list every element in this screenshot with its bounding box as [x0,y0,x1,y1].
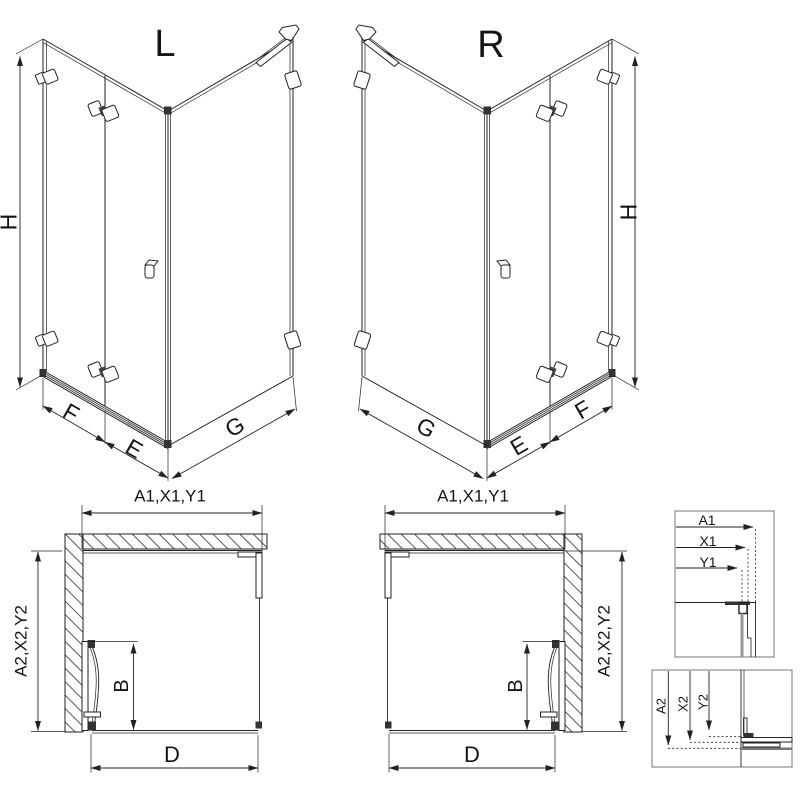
plan-right-depth-label: A2,X2,Y2 [596,605,613,677]
detail-top-row-a1: A1 [698,513,715,527]
detail-bottom-row-a2: A2 [655,698,668,714]
iso-left-title: L [154,25,175,63]
detail-bottom-drawing [652,670,792,767]
plan-left-opening-label: D [164,744,180,766]
plan-right-opening-label: D [464,744,480,766]
plan-left-door-label: B [112,679,132,692]
iso-right-height-label: H [618,204,641,221]
detail-top-row-y1: Y1 [699,555,716,569]
detail-top-row-x1: X1 [699,534,716,548]
plan-left-drawing [31,505,267,773]
detail-bottom-row-x2: X2 [677,696,690,712]
technical-drawing-page: L H F E G R H G E F A1,X1,Y1 A2,X2,Y2 B … [0,0,800,800]
plan-left-width-label: A1,X1,Y1 [134,488,206,505]
iso-left-height-label: H [0,214,21,231]
plan-left-depth-label: A2,X2,Y2 [13,605,30,677]
iso-right-drawing [353,25,639,481]
iso-left-drawing [16,25,302,481]
iso-right-title: R [477,26,504,64]
plan-right-width-label: A1,X1,Y1 [437,488,509,505]
plan-right-door-label: B [506,679,526,692]
detail-top-drawing [675,511,774,657]
plan-right-drawing [380,505,627,773]
detail-bottom-row-y2: Y2 [697,694,710,710]
